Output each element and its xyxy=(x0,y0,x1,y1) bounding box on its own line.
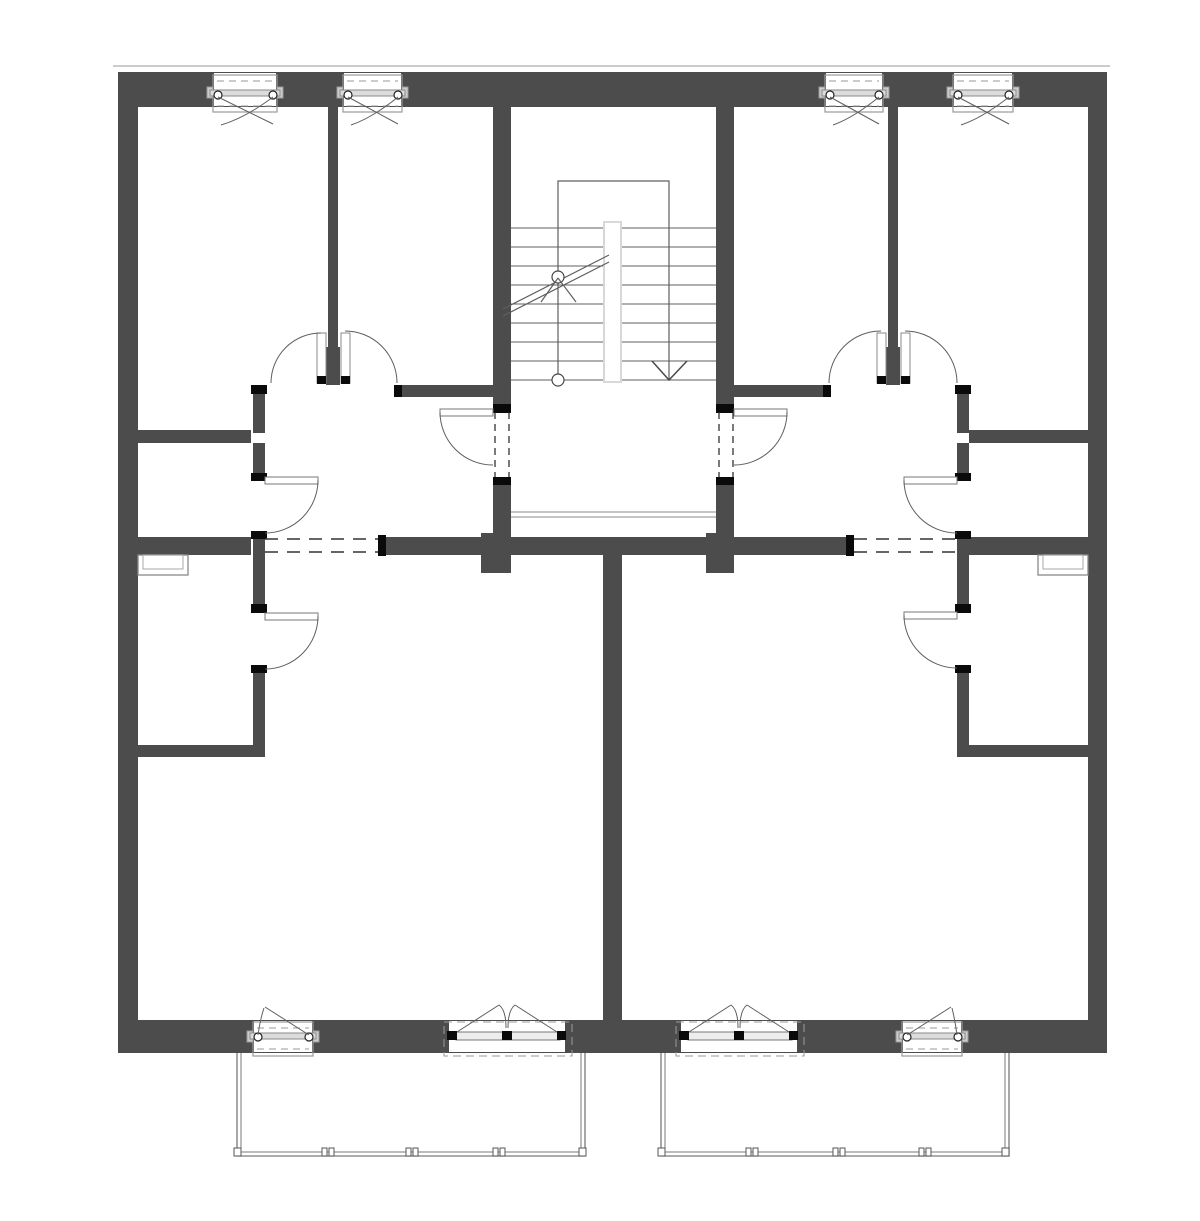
r xyxy=(394,385,402,397)
r xyxy=(493,477,511,485)
room4-door-leaf xyxy=(901,333,910,383)
stairwell-left-wall xyxy=(493,107,511,404)
stair-divider xyxy=(604,222,621,382)
r xyxy=(386,537,493,555)
right-hall-wall xyxy=(734,385,823,397)
left-entry-door-leaf xyxy=(440,409,493,416)
middle-wall-right xyxy=(967,537,1088,555)
r xyxy=(734,537,846,555)
stairwell-right-wall xyxy=(716,107,734,404)
left-wc-door-leaf xyxy=(265,477,318,484)
r xyxy=(253,555,265,612)
r xyxy=(413,1148,418,1156)
hinge-circle xyxy=(344,91,352,99)
r xyxy=(253,443,265,473)
r xyxy=(901,376,910,384)
r xyxy=(886,347,900,385)
r xyxy=(1002,1148,1009,1156)
r xyxy=(955,531,971,539)
r xyxy=(251,385,267,394)
r xyxy=(406,1148,411,1156)
r xyxy=(753,1148,758,1156)
left-wc-top-wall xyxy=(138,430,251,443)
right-closet-door-leaf xyxy=(904,612,957,619)
room1-door-leaf xyxy=(317,333,326,383)
hinge-circle xyxy=(269,91,277,99)
r xyxy=(317,376,326,384)
r xyxy=(957,443,969,473)
r xyxy=(493,404,511,413)
r xyxy=(716,404,734,413)
r xyxy=(957,539,969,555)
r xyxy=(234,1148,241,1156)
room3-door-leaf xyxy=(877,333,886,383)
hinge-circle xyxy=(1005,91,1013,99)
r xyxy=(823,385,831,397)
left-hall-wall xyxy=(402,385,493,397)
r xyxy=(716,477,734,485)
r xyxy=(746,1148,751,1156)
hinge-circle xyxy=(826,91,834,99)
r xyxy=(919,1148,924,1156)
r xyxy=(877,376,886,384)
r xyxy=(833,1148,838,1156)
r xyxy=(557,1031,566,1040)
middle-wall-left xyxy=(138,537,251,555)
hinge-circle xyxy=(875,91,883,99)
r xyxy=(378,535,386,556)
r xyxy=(957,555,969,612)
r xyxy=(329,1148,334,1156)
right-wc-top-wall xyxy=(969,430,1088,443)
floor-plan xyxy=(0,0,1200,1221)
r xyxy=(502,1031,512,1040)
r xyxy=(658,1148,665,1156)
left-rooms-divider-wall xyxy=(328,107,338,347)
r xyxy=(734,1031,744,1040)
r xyxy=(253,539,265,555)
r xyxy=(341,376,350,384)
right-wc-door-leaf xyxy=(904,477,957,484)
r xyxy=(840,1148,845,1156)
right-closet-bottom-wall xyxy=(957,745,1088,757)
r xyxy=(579,1148,586,1156)
floor-plan-drawing xyxy=(0,0,1200,1221)
r xyxy=(500,1148,505,1156)
r xyxy=(326,347,340,385)
r xyxy=(955,665,971,673)
walk-start-circle xyxy=(552,374,564,386)
r xyxy=(251,665,267,673)
hinge-circle xyxy=(954,1033,962,1041)
r xyxy=(789,1031,798,1040)
hinge-circle xyxy=(214,91,222,99)
hinge-circle xyxy=(305,1033,313,1041)
left-exterior-wall xyxy=(118,72,138,1053)
r xyxy=(716,485,734,537)
r xyxy=(926,1148,931,1156)
walk-break-circle xyxy=(552,271,564,283)
r xyxy=(251,604,267,613)
r xyxy=(957,673,969,745)
hinge-circle xyxy=(394,91,402,99)
hinge-circle xyxy=(903,1033,911,1041)
r xyxy=(253,673,265,745)
room2-door-leaf xyxy=(341,333,350,383)
hinge-circle xyxy=(954,91,962,99)
r xyxy=(846,535,854,556)
r xyxy=(679,1031,689,1040)
left-niche xyxy=(138,555,188,575)
r xyxy=(493,1148,498,1156)
left-closet-bottom-wall xyxy=(138,745,265,757)
r xyxy=(493,485,511,537)
left-closet-door-leaf xyxy=(265,613,318,620)
right-entry-door-leaf xyxy=(734,409,787,416)
r xyxy=(251,531,267,539)
right-rooms-divider-wall xyxy=(888,107,898,347)
r xyxy=(322,1148,327,1156)
r xyxy=(447,1031,457,1040)
r xyxy=(955,385,971,394)
right-niche xyxy=(1038,555,1088,575)
inter-apartment-wall xyxy=(603,537,622,1020)
right-exterior-wall xyxy=(1088,72,1107,1053)
